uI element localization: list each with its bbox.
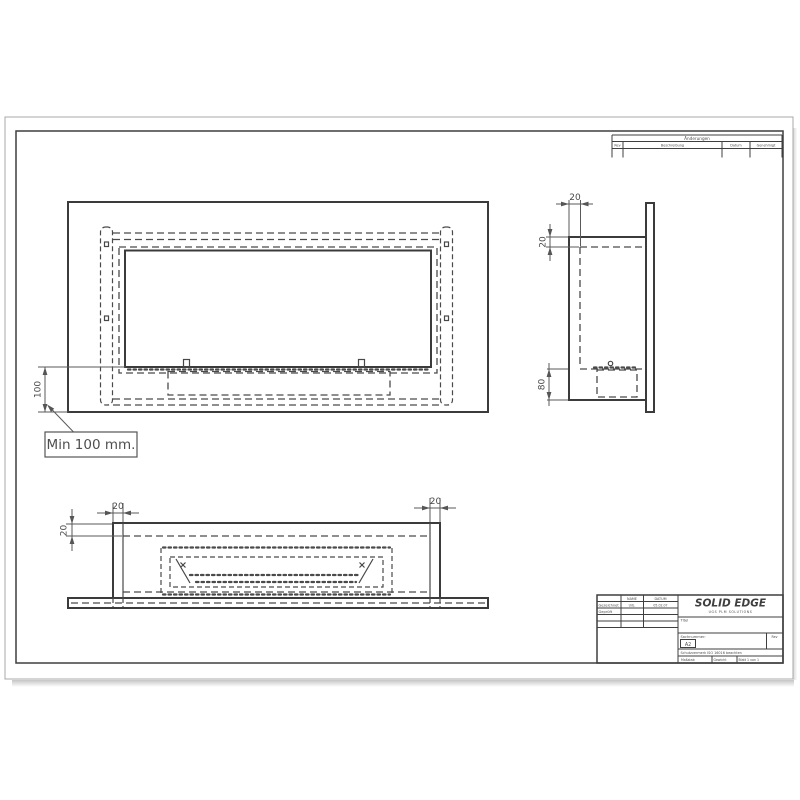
revision-col-approved: Genehmigt bbox=[757, 144, 776, 148]
dim-side-wall-label: 20 bbox=[569, 193, 581, 203]
titleblock-sachnummer-label: Sachnummer: bbox=[681, 635, 706, 639]
titleblock-drawn-name: Urb. bbox=[629, 604, 636, 608]
solid-edge-logo-sub: UGS PLM SOLUTIONS bbox=[709, 610, 753, 614]
callout-text: Min 100 mm. bbox=[47, 437, 136, 453]
titleblock-size: A2 bbox=[685, 642, 691, 648]
dim-side-top-label: 20 bbox=[539, 236, 549, 248]
titleblock-schutzvermerk: Schutzvermerk ISO 16016 beachten bbox=[681, 651, 742, 655]
titleblock-scale-label: Maßstab bbox=[681, 658, 695, 662]
dim-side-burner-label: 80 bbox=[538, 379, 548, 391]
revision-col-description: Beschreibung bbox=[661, 144, 684, 148]
titleblock-sheet-label: Blatt 1 von 1 bbox=[739, 658, 759, 662]
titleblock-row-drawn: Gezeichnet bbox=[599, 604, 620, 608]
solid-edge-logo: SOLID EDGE bbox=[695, 598, 767, 610]
dim-bottom-wall-right-label: 20 bbox=[430, 497, 442, 507]
titleblock-weight-label: Gewicht bbox=[714, 658, 728, 662]
cad-drawing-sheet: Änderungen Rev Beschreibung Datum Genehm… bbox=[0, 0, 800, 800]
revision-col-date: Datum bbox=[730, 144, 742, 148]
titleblock-rev-label: Rev bbox=[772, 635, 778, 639]
dim-bottom-wall-left-label: 20 bbox=[112, 502, 124, 512]
drawing-page: Änderungen Rev Beschreibung Datum Genehm… bbox=[0, 0, 800, 800]
titleblock-col-date: DATUM bbox=[654, 597, 666, 601]
revision-col-rev: Rev bbox=[614, 144, 620, 148]
dim-front-height-label: 100 bbox=[34, 381, 44, 398]
dim-bottom-depth-label: 20 bbox=[60, 525, 70, 537]
sheet-shadow-bottom bbox=[12, 680, 794, 687]
titleblock-col-name: NAME bbox=[627, 597, 637, 601]
titleblock-row-checked: Geprüft bbox=[599, 610, 613, 614]
titleblock-drawn-date: 05.02.07 bbox=[653, 604, 667, 608]
titleblock-titel-label: Titel bbox=[680, 619, 689, 623]
sheet-shadow-right bbox=[794, 128, 798, 680]
revision-table-title: Änderungen bbox=[684, 136, 710, 141]
